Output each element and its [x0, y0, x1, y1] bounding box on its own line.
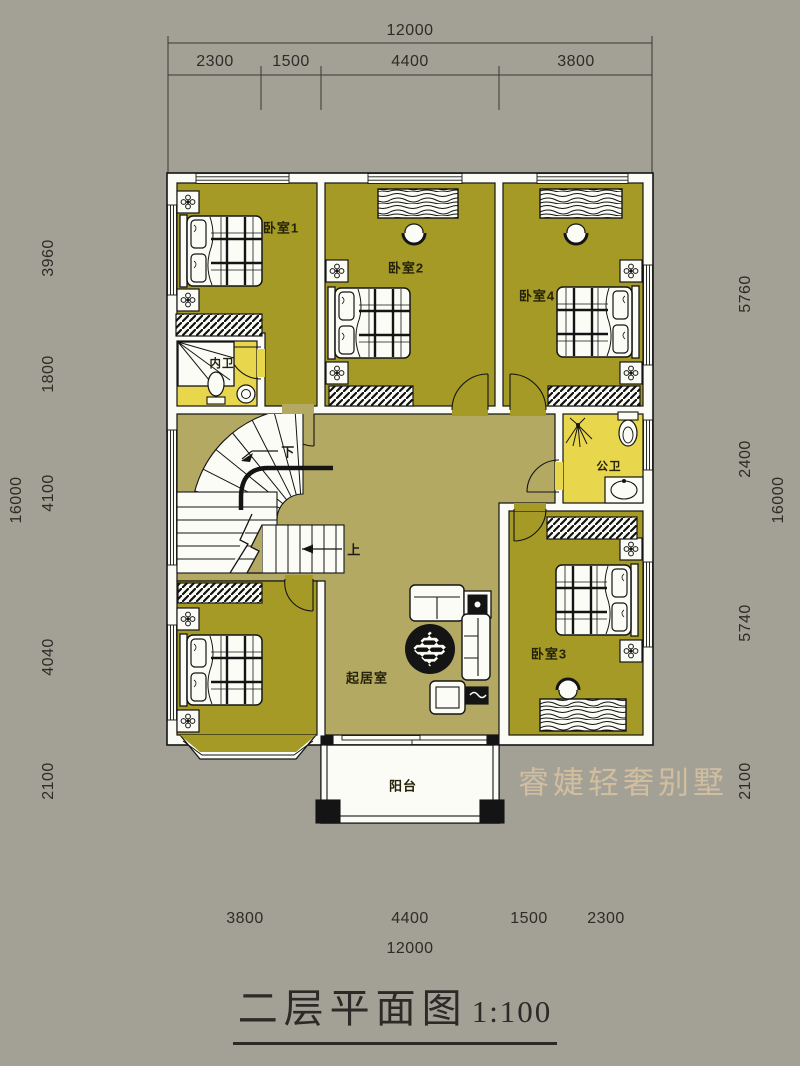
dim-left-seg-2: 1800: [40, 355, 58, 393]
sink: [611, 481, 637, 499]
chair-bedroom3: [557, 679, 579, 699]
dim-top-seg-1: 2300: [196, 53, 234, 71]
title-scale: 1:100: [472, 994, 553, 1029]
dim-top-seg-3: 4400: [391, 53, 429, 71]
dim-right-seg-2: 2400: [737, 440, 755, 478]
wardrobe-bedroom4: [540, 189, 622, 218]
dim-right-seg-1: 5760: [737, 275, 755, 313]
bed-bedroom4: [557, 286, 639, 358]
dim-bottom-seg-2: 4400: [391, 910, 429, 928]
desk-bedroom3: [540, 699, 626, 731]
window-top-bedroom2: [368, 174, 462, 184]
balcony-post-right: [480, 800, 504, 823]
wardrobe-bedroom2: [378, 189, 458, 218]
room-label-bedroom3: 卧室3: [531, 644, 567, 663]
room-label-bedroom2: 卧室2: [388, 258, 424, 277]
room-label-bedroom4: 卧室4: [519, 286, 555, 305]
window-left-bedroom1: [168, 205, 177, 295]
stair-down-label: 下: [281, 442, 295, 461]
title-text: 二层平面图: [238, 986, 468, 1031]
dim-left-seg-3: 4100: [40, 474, 58, 512]
toilet-tank: [207, 397, 225, 404]
floor-plan-drawing: [0, 0, 800, 1066]
window-right-publicbath: [644, 420, 653, 470]
dim-top-total: 12000: [387, 22, 434, 40]
armchair: [430, 681, 465, 714]
drawing-title: 二层平面图 1:100: [233, 976, 557, 1045]
window-left-stair: [168, 430, 177, 565]
floor-plan-page: 12000 2300 1500 4400 3800 3800 4400 1500…: [0, 0, 800, 1066]
bay-floor: [180, 735, 316, 752]
dim-bottom-seg-3: 1500: [510, 910, 548, 928]
chair-bedroom2: [403, 224, 425, 244]
dim-top-seg-4: 3800: [557, 53, 595, 71]
dim-bottom-total: 12000: [387, 940, 434, 958]
dim-right-seg-4: 2100: [737, 762, 755, 800]
window-left-bedroom5: [168, 625, 177, 720]
toilet-tank: [618, 412, 638, 420]
dim-left-seg-5: 2100: [40, 762, 58, 800]
dim-bottom-seg-4: 2300: [587, 910, 625, 928]
bed-bedroom3: [556, 564, 638, 636]
window-right-bedroom4: [644, 265, 653, 365]
dim-bottom-seg-1: 3800: [226, 910, 264, 928]
dim-right-seg-3: 5740: [737, 604, 755, 642]
stair-up-label: 上: [347, 540, 361, 559]
room-label-bedroom1: 卧室1: [263, 218, 299, 237]
chair-bedroom4: [565, 224, 587, 244]
room-label-living: 起居室: [346, 668, 388, 687]
room-label-ensuite: 内卫: [210, 355, 235, 371]
dim-left-seg-1: 3960: [40, 239, 58, 277]
window-right-bedroom3: [644, 562, 653, 647]
room-label-publicbath: 公卫: [597, 458, 622, 474]
bed-bedroom1: [180, 215, 262, 287]
window-top-bedroom4: [537, 174, 628, 184]
l-sofa: [462, 614, 490, 680]
dim-left-seg-4: 4040: [40, 638, 58, 676]
window-top-bedroom1: [196, 174, 289, 184]
toilet: [208, 372, 224, 396]
dim-right-total: 16000: [770, 477, 788, 524]
watermark: 睿婕轻奢别墅: [518, 758, 728, 803]
dim-top-seg-2: 1500: [272, 53, 310, 71]
bed-bedroom5: [180, 634, 262, 706]
bed-bedroom2: [328, 287, 410, 359]
dim-left-total: 16000: [8, 477, 26, 524]
room-label-balcony: 阳台: [389, 776, 417, 795]
balcony-post-left: [316, 800, 340, 823]
